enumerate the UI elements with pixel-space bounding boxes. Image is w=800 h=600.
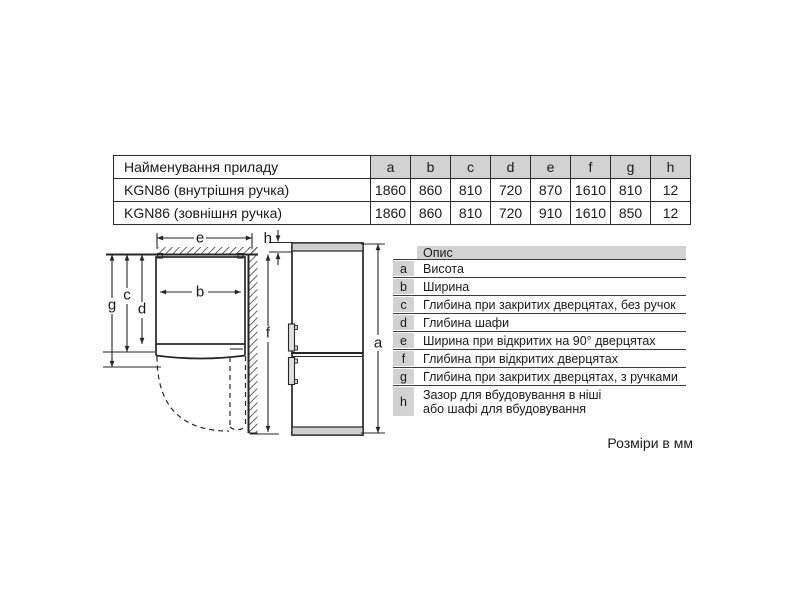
- fridge-top-view: [156, 254, 245, 359]
- cell-value: 12: [651, 179, 691, 202]
- top-cap: [292, 243, 363, 251]
- table-row: KGN86 (внутрішня ручка) 1860 860 810 720…: [114, 179, 691, 202]
- legend-row-c: c Глибина при закритих дверцятах, без ру…: [393, 296, 686, 314]
- model-label: KGN86 (зовнішня ручка): [114, 202, 371, 225]
- dim-a: a: [361, 244, 385, 433]
- col-header-h: h: [651, 156, 691, 179]
- legend-key: g: [393, 369, 414, 384]
- cell-value: 810: [451, 179, 491, 202]
- fridge-front-view: [289, 243, 364, 435]
- dim-label-d: d: [138, 301, 146, 318]
- legend-header: Опис: [417, 246, 686, 259]
- col-header-a: a: [371, 156, 411, 179]
- legend-desc-line1: Зазор для вбудовування в ніші: [423, 388, 686, 402]
- door-swing-arc: [157, 356, 246, 431]
- legend-desc-line2: або шафі для вбудовування: [423, 402, 686, 416]
- dim-label-a: a: [374, 335, 383, 352]
- col-header-f: f: [571, 156, 611, 179]
- legend-row-g: g Глибина при закритих дверцятах, з ручк…: [393, 368, 686, 386]
- legend-desc: Висота: [423, 262, 686, 276]
- cell-value: 1610: [571, 202, 611, 225]
- units-note: Розміри в мм: [500, 435, 693, 451]
- legend-key: f: [393, 351, 414, 366]
- dim-label-e: e: [196, 230, 204, 247]
- col-header-c: c: [451, 156, 491, 179]
- cell-value: 860: [411, 202, 451, 225]
- table-header-row: Найменування приладу a b c d e f g h: [114, 156, 691, 179]
- legend-key: a: [393, 261, 414, 276]
- dim-label-b: b: [196, 284, 204, 301]
- legend-row-a: a Висота: [393, 260, 686, 278]
- installation-drawing: e h b g c d f: [95, 225, 395, 445]
- legend-desc: Глибина шафи: [423, 316, 686, 330]
- legend-table: Опис a Висота b Ширина c Глибина при зак…: [393, 246, 686, 417]
- legend-row-e: e Ширина при відкритих на 90° дверцятах: [393, 332, 686, 350]
- legend-row-h: h Зазор для вбудовування в ніші або шафі…: [393, 386, 686, 417]
- legend-key: c: [393, 297, 414, 312]
- legend-header-row: Опис: [393, 246, 686, 260]
- dim-d: d: [138, 255, 146, 345]
- legend-row-f: f Глибина при відкритих дверцятах: [393, 350, 686, 368]
- dim-e: e: [157, 230, 252, 250]
- legend-row-b: b Ширина: [393, 278, 686, 296]
- col-header-g: g: [611, 156, 651, 179]
- table-header-name: Найменування приладу: [114, 156, 371, 179]
- cell-value: 12: [651, 202, 691, 225]
- plinth: [292, 427, 363, 435]
- legend-desc: Глибина при відкритих дверцятах: [423, 352, 686, 366]
- legend-key: d: [393, 315, 414, 330]
- dim-label-c: c: [123, 287, 131, 304]
- col-header-e: e: [531, 156, 571, 179]
- legend-key: b: [393, 279, 414, 294]
- cell-value: 810: [611, 179, 651, 202]
- legend-row-d: d Глибина шафи: [393, 314, 686, 332]
- table-row: KGN86 (зовнішня ручка) 1860 860 810 720 …: [114, 202, 691, 225]
- legend-desc: Ширина: [423, 280, 686, 294]
- legend-key: e: [393, 333, 414, 348]
- cell-value: 870: [531, 179, 571, 202]
- col-header-b: b: [411, 156, 451, 179]
- legend-key: h: [393, 387, 414, 416]
- cell-value: 1860: [371, 179, 411, 202]
- cell-value: 1860: [371, 202, 411, 225]
- dim-g: g: [103, 255, 161, 368]
- cell-value: 850: [611, 202, 651, 225]
- col-header-d: d: [491, 156, 531, 179]
- cell-value: 720: [491, 179, 531, 202]
- dimensions-table: Найменування приладу a b c d e f g h KGN…: [113, 155, 691, 225]
- cell-value: 860: [411, 179, 451, 202]
- legend-desc: Глибина при закритих дверцятах, з ручкам…: [423, 370, 686, 384]
- dim-label-h: h: [264, 230, 272, 247]
- dim-label-g: g: [108, 297, 116, 314]
- cell-value: 720: [491, 202, 531, 225]
- cell-value: 910: [531, 202, 571, 225]
- legend-desc: Ширина при відкритих на 90° дверцятах: [423, 334, 686, 348]
- legend-desc: Глибина при закритих дверцятах, без ручо…: [423, 298, 686, 312]
- dim-label-f: f: [266, 325, 271, 342]
- cell-value: 810: [451, 202, 491, 225]
- model-label: KGN86 (внутрішня ручка): [114, 179, 371, 202]
- cell-value: 1610: [571, 179, 611, 202]
